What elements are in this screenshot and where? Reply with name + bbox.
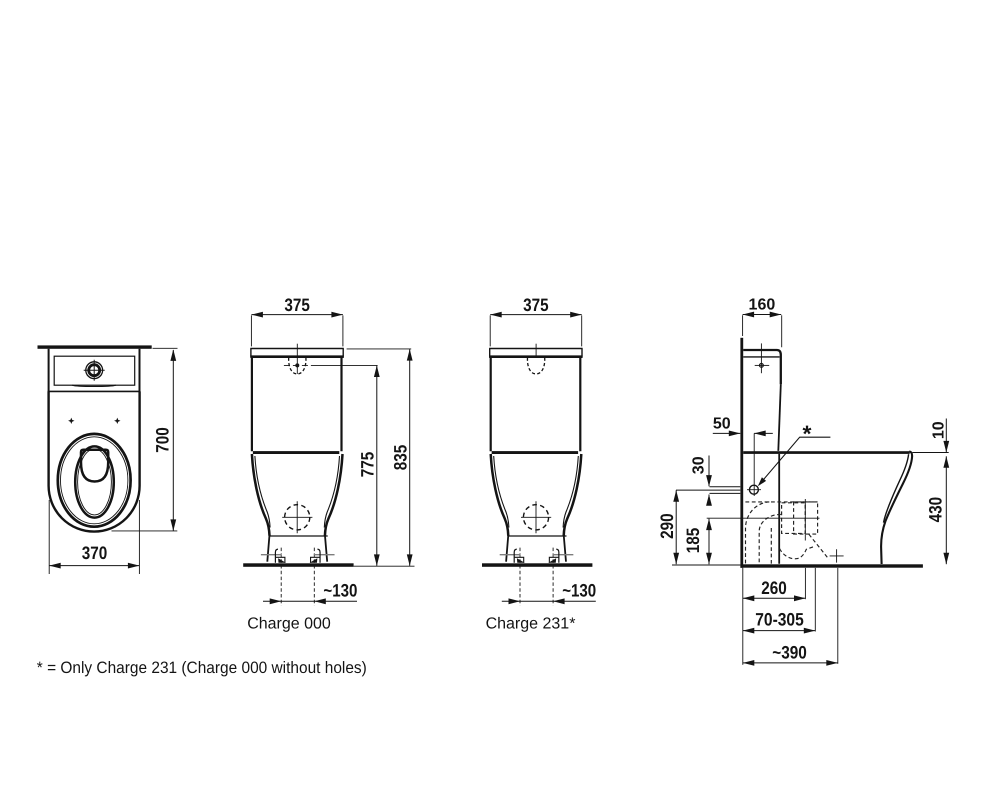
- svg-text:370: 370: [82, 543, 108, 563]
- svg-text:290: 290: [657, 513, 677, 539]
- svg-text:~390: ~390: [772, 643, 807, 663]
- svg-text:700: 700: [153, 427, 173, 453]
- svg-text:* = Only Charge 231 (Charge 00: * = Only Charge 231 (Charge 000 without …: [37, 659, 367, 677]
- svg-text:775: 775: [357, 452, 377, 478]
- svg-text:185: 185: [683, 528, 703, 554]
- svg-text:50: 50: [713, 416, 731, 433]
- svg-text:835: 835: [390, 445, 410, 471]
- svg-text:30: 30: [690, 456, 707, 474]
- svg-text:Charge 231*: Charge 231*: [486, 615, 576, 632]
- svg-text:*: *: [803, 421, 812, 447]
- svg-text:70-305: 70-305: [755, 610, 804, 630]
- svg-text:10: 10: [931, 421, 948, 439]
- svg-text:Charge 000: Charge 000: [247, 615, 331, 632]
- svg-text:430: 430: [926, 497, 946, 522]
- svg-text:160: 160: [749, 296, 776, 313]
- svg-text:260: 260: [761, 578, 787, 598]
